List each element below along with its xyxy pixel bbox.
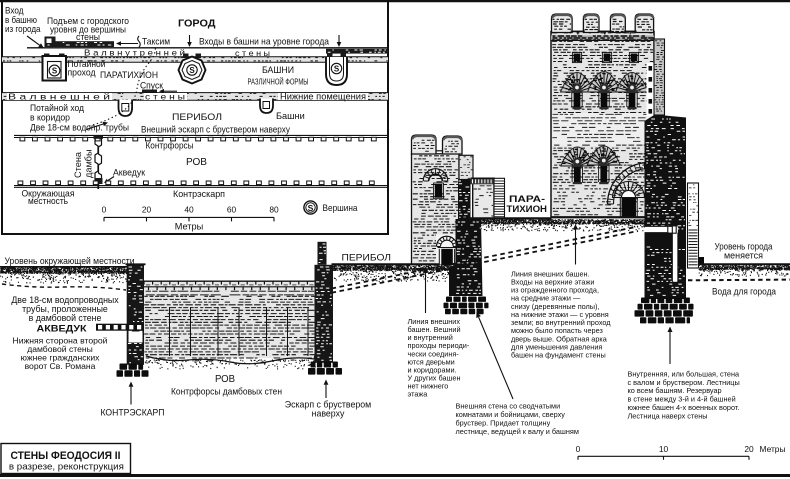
svg-text:В а л в н у т р е н н е й: В а л в н у т р е н н е й <box>84 49 185 58</box>
svg-text:Метры: Метры <box>175 222 203 232</box>
svg-text:S: S <box>52 67 58 76</box>
svg-text:этажа: этажа <box>408 390 429 399</box>
svg-text:Спуск: Спуск <box>140 80 164 90</box>
svg-text:стены: стены <box>76 32 100 42</box>
svg-text:местность: местность <box>28 196 68 206</box>
svg-text:ГОРОД: ГОРОД <box>178 18 216 30</box>
svg-text:Башни: Башни <box>276 111 305 121</box>
svg-text:из города: из города <box>5 24 41 34</box>
svg-text:лестнице, ведущей к валу и баш: лестнице, ведущей к валу и башням <box>456 427 579 436</box>
svg-text:80: 80 <box>269 204 279 214</box>
svg-text:меняется: меняется <box>724 251 763 261</box>
svg-text:S: S <box>334 65 340 74</box>
svg-text:S: S <box>308 203 314 213</box>
svg-text:Контрэскарп: Контрэскарп <box>173 189 225 199</box>
svg-text:ворот Св. Романа: ворот Св. Романа <box>25 361 96 371</box>
svg-text:СТЕНЫ ФЕОДОСИЯ II: СТЕНЫ ФЕОДОСИЯ II <box>11 450 121 462</box>
svg-text:В а л в н е ш н е й: В а л в н е ш н е й <box>8 92 110 101</box>
svg-text:ПЕРИБОЛ: ПЕРИБОЛ <box>342 253 392 264</box>
svg-text:в коридор: в коридор <box>30 113 70 123</box>
svg-text:60: 60 <box>227 204 237 214</box>
svg-text:ТИХИОН: ТИХИОН <box>507 203 548 214</box>
svg-text:10: 10 <box>659 444 669 454</box>
svg-text:Таксим: Таксим <box>142 37 170 47</box>
svg-text:дамбы: дамбы <box>84 149 94 178</box>
svg-text:РОВ: РОВ <box>215 374 235 385</box>
svg-text:Две 18-см водопр. трубы: Две 18-см водопр. трубы <box>30 122 129 132</box>
svg-text:Акведук: Акведук <box>113 167 146 177</box>
svg-text:Лестница наверх стены: Лестница наверх стены <box>628 412 708 421</box>
svg-text:Вершина: Вершина <box>323 203 359 213</box>
svg-text:0: 0 <box>102 204 107 214</box>
svg-text:Внешний эскарп с бруствером на: Внешний эскарп с бруствером наверху <box>141 124 290 134</box>
svg-text:40: 40 <box>184 204 194 214</box>
svg-text:проход: проход <box>68 68 97 78</box>
svg-text:наверху: наверху <box>312 409 345 419</box>
svg-text:Уровень окружающей местности: Уровень окружающей местности <box>5 256 135 266</box>
svg-text:АКВЕДУК: АКВЕДУК <box>37 323 87 333</box>
svg-text:ПЕРИБОЛ: ПЕРИБОЛ <box>172 112 222 123</box>
svg-text:РАЗЛИЧНОЙ ФОРМЫ: РАЗЛИЧНОЙ ФОРМЫ <box>248 76 309 87</box>
svg-text:КОНТРЭСКАРП: КОНТРЭСКАРП <box>101 407 165 417</box>
svg-text:БАШНИ: БАШНИ <box>262 64 294 75</box>
svg-text:Метры: Метры <box>760 444 786 454</box>
svg-text:S: S <box>189 66 195 75</box>
svg-text:20: 20 <box>142 204 152 214</box>
svg-text:Нижние помещения: Нижние помещения <box>280 92 366 102</box>
svg-text:в дамбовой стене: в дамбовой стене <box>29 313 102 323</box>
svg-text:ПАРАТИХИОН: ПАРАТИХИОН <box>100 70 158 81</box>
svg-text:Вода для города: Вода для города <box>712 287 776 297</box>
svg-text:башен на фундамент стены: башен на фундамент стены <box>511 351 606 360</box>
svg-text:Входы в башни на уровне города: Входы в башни на уровне города <box>199 36 330 46</box>
svg-text:Контрфорсы дамбовых стен: Контрфорсы дамбовых стен <box>171 387 282 397</box>
svg-text:с т е н ы: с т е н ы <box>145 92 185 101</box>
svg-text:0: 0 <box>576 444 581 454</box>
svg-text:20: 20 <box>744 444 754 454</box>
svg-text:РОВ: РОВ <box>186 157 207 168</box>
svg-text:Контрфорсы: Контрфорсы <box>146 141 194 151</box>
svg-text:в разрезе, реконструкция: в разрезе, реконструкция <box>9 462 124 472</box>
svg-text:Стена: Стена <box>73 151 83 178</box>
